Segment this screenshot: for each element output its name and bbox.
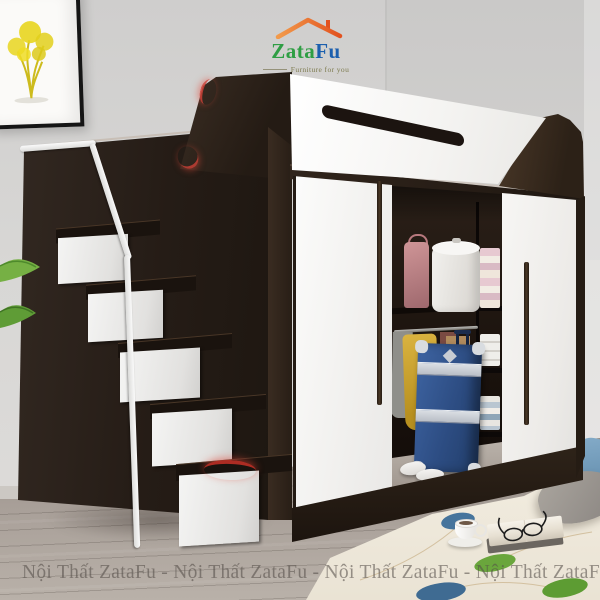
baseboard: [0, 486, 20, 499]
stair-drawer-4: [152, 409, 232, 467]
suitcase: [414, 343, 482, 473]
brand-tagline: Furniture for you: [291, 65, 349, 74]
folded-towels-pink: [480, 248, 500, 308]
right-door-handle: [524, 262, 529, 425]
brand-name: ZataFu: [250, 39, 362, 64]
suitcase-corner-cap: [472, 342, 485, 355]
wardrobe-interior: [392, 186, 502, 489]
folded-towels-blue: [480, 396, 500, 430]
brand-tagline-row: Furniture for you: [250, 65, 362, 74]
cup-coffee: [459, 521, 473, 525]
suitcase-corner-cap: [415, 340, 428, 353]
suitcase-handle-grip: [454, 330, 471, 334]
suitcase-badge: [443, 349, 457, 363]
storage-basket: [432, 246, 480, 312]
left-door-handle: [377, 181, 382, 405]
sliding-door-right: [502, 193, 577, 470]
picture-frame: [0, 0, 84, 130]
brand-logo: ZataFu Furniture for you: [250, 13, 362, 77]
suitcase-strap-bottom: [415, 409, 479, 424]
plant-leaves: [0, 250, 46, 346]
side-shelf-3: [476, 432, 502, 437]
product-photo-scene: ZataFu Furniture for you: [0, 0, 600, 600]
cup-handle: [474, 524, 487, 537]
brand-name-part1: Zata: [271, 39, 315, 63]
basket-lid: [432, 241, 480, 255]
wall-highlight: [584, 0, 600, 450]
roof-icon: [250, 13, 362, 39]
brand-name-part2: Fu: [315, 39, 341, 63]
wardrobe-right-frame: [576, 196, 585, 478]
handbag: [404, 242, 429, 308]
suitcase-strap-top: [417, 362, 481, 377]
watermark-text: Nội Thất ZataFu - Nội Thất ZataFu - Nội …: [0, 562, 600, 584]
stair-drawer-1: [58, 234, 128, 284]
yellow-tree-art: [0, 3, 66, 109]
basket-knob: [452, 238, 461, 243]
sliding-door-left-frame: [293, 176, 296, 509]
eyeglasses: [495, 503, 559, 549]
stair-drawer-5: [179, 471, 259, 547]
tagline-rule: [263, 69, 287, 70]
